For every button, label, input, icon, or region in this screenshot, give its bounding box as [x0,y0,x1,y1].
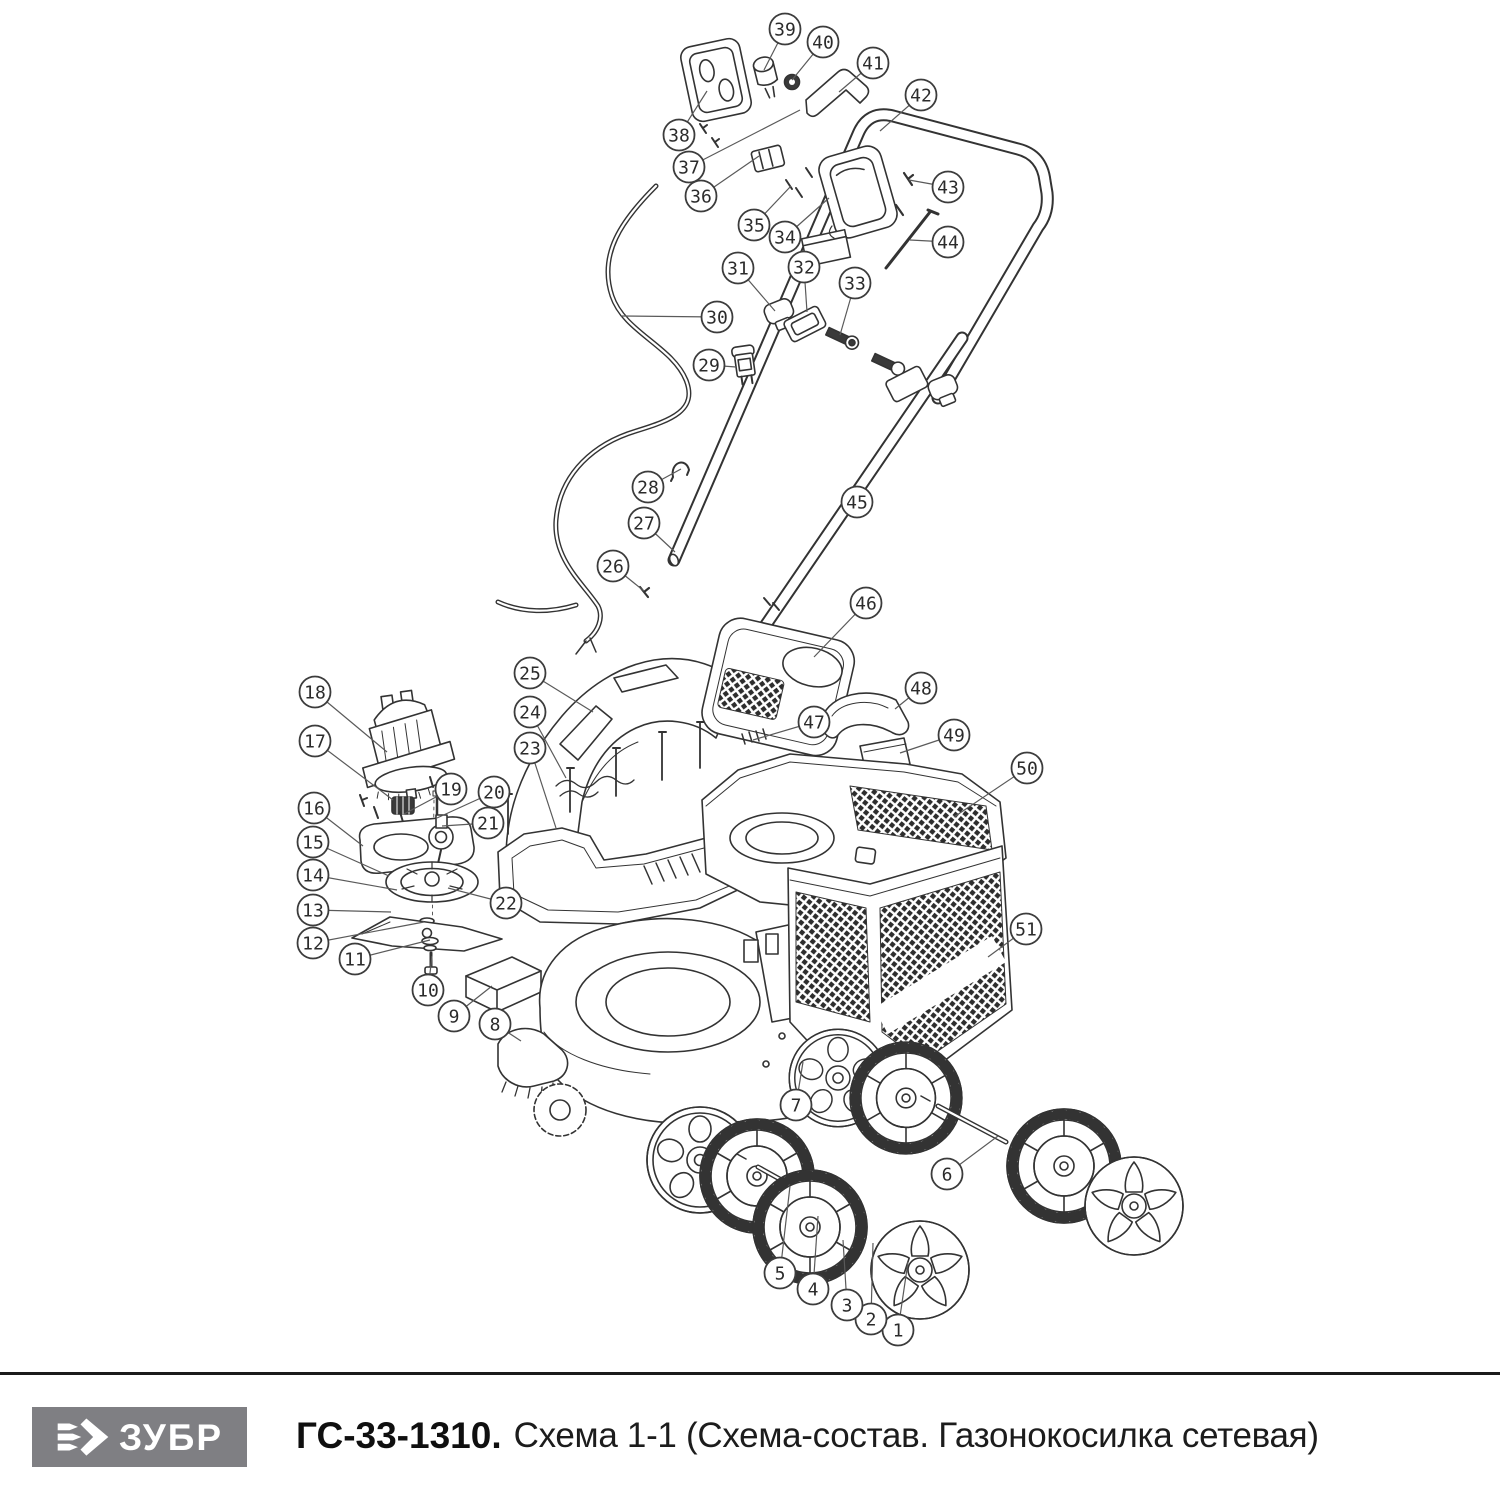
svg-text:4: 4 [808,1280,819,1301]
svg-text:24: 24 [519,703,541,724]
clamp-bolt-1 [825,325,861,351]
cable-hook [671,463,689,481]
brand-name: ЗУБР [119,1419,223,1456]
svg-text:11: 11 [344,950,366,971]
svg-text:32: 32 [793,258,815,279]
svg-text:3: 3 [842,1296,853,1317]
callout-10: 10 [413,956,444,1006]
svg-text:47: 47 [803,713,825,734]
svg-text:16: 16 [303,799,325,820]
svg-text:38: 38 [668,126,690,147]
svg-text:31: 31 [727,259,749,280]
diagram-caption: ГС-33-1310. Схема 1-1 (Схема-состав. Газ… [296,1404,1319,1468]
callout-29: 29 [694,350,737,381]
callout-43: 43 [909,172,964,203]
page: 1234567891011121314151617181920212223242… [0,0,1500,1500]
svg-text:41: 41 [862,54,884,75]
callout-26: 26 [598,551,645,592]
svg-text:37: 37 [678,158,700,179]
svg-text:26: 26 [602,557,624,578]
svg-text:18: 18 [304,683,326,704]
svg-text:2: 2 [866,1310,877,1331]
svg-text:1: 1 [893,1321,904,1342]
svg-text:6: 6 [942,1165,953,1186]
callout-13: 13 [298,895,392,926]
svg-text:10: 10 [417,981,439,1002]
zubr-arrow-icon [56,1415,110,1459]
exploded-diagram: 1234567891011121314151617181920212223242… [0,0,1500,1500]
switch-box [679,37,753,124]
svg-text:13: 13 [302,901,324,922]
svg-text:27: 27 [633,514,655,535]
caption-text: Схема 1-1 (Схема-состав. Газонокосилка с… [514,1416,1319,1456]
power-cable [498,186,689,654]
screw-43 [896,173,913,215]
switch-housing [816,143,901,241]
callout-49: 49 [900,720,970,754]
svg-text:14: 14 [302,866,324,887]
cable-gland [752,55,781,100]
svg-text:46: 46 [855,594,877,615]
callout-31: 31 [723,253,776,312]
housing-screws [786,168,812,197]
callout-6: 6 [932,1136,999,1190]
callout-27: 27 [629,508,676,553]
svg-text:21: 21 [477,814,499,835]
svg-text:34: 34 [774,228,796,249]
svg-text:50: 50 [1016,759,1038,780]
svg-text:20: 20 [483,783,505,804]
footer-divider [0,1372,1500,1375]
svg-text:28: 28 [637,478,659,499]
brand-logo: ЗУБР [32,1407,247,1467]
blade [352,917,502,974]
svg-text:12: 12 [302,934,324,955]
lever [806,70,869,117]
svg-text:45: 45 [846,493,868,514]
svg-text:42: 42 [910,86,932,107]
svg-text:17: 17 [304,732,326,753]
svg-text:30: 30 [706,308,728,329]
svg-text:25: 25 [519,664,541,685]
svg-text:35: 35 [743,216,765,237]
svg-text:5: 5 [775,1264,786,1285]
svg-text:7: 7 [791,1096,802,1117]
callout-45: 45 [842,487,873,518]
svg-text:29: 29 [698,356,720,377]
svg-text:40: 40 [812,33,834,54]
svg-text:48: 48 [910,679,932,700]
box-part [466,957,541,1012]
svg-text:33: 33 [844,274,866,295]
svg-text:43: 43 [937,178,959,199]
svg-text:23: 23 [519,739,541,760]
svg-text:8: 8 [490,1015,501,1036]
model-number: ГС-33-1310. [296,1415,502,1457]
svg-text:19: 19 [440,780,462,801]
svg-text:49: 49 [943,726,965,747]
svg-text:22: 22 [495,894,517,915]
svg-text:36: 36 [690,187,712,208]
svg-text:15: 15 [302,833,324,854]
svg-text:44: 44 [937,233,959,254]
callout-28: 28 [633,469,682,503]
switch-box-screws [700,124,719,147]
svg-text:51: 51 [1015,920,1037,941]
svg-text:39: 39 [774,20,796,41]
callout-33: 33 [840,268,871,336]
callout-44: 44 [910,227,964,258]
callout-48: 48 [895,673,937,710]
svg-text:9: 9 [449,1007,460,1028]
